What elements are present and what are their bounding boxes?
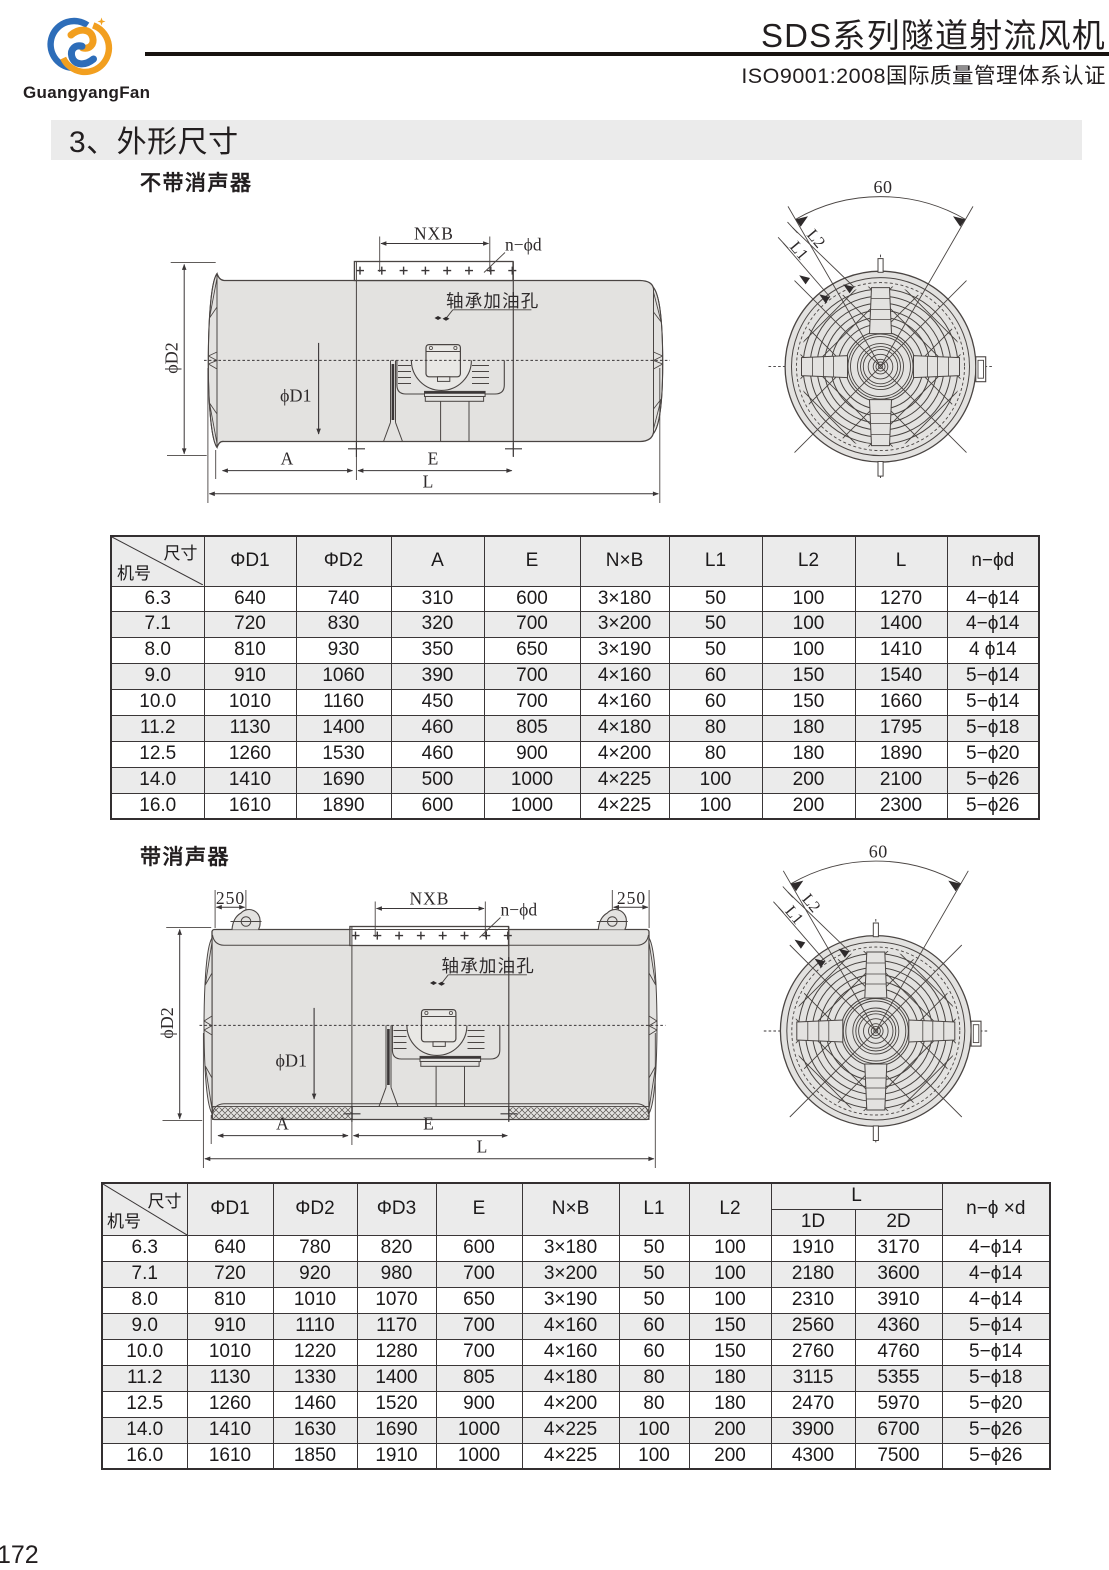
svg-text:250: 250 [216, 888, 245, 908]
svg-text:250: 250 [617, 888, 646, 908]
svg-text:L: L [423, 472, 434, 492]
svg-text:L: L [477, 1137, 488, 1157]
